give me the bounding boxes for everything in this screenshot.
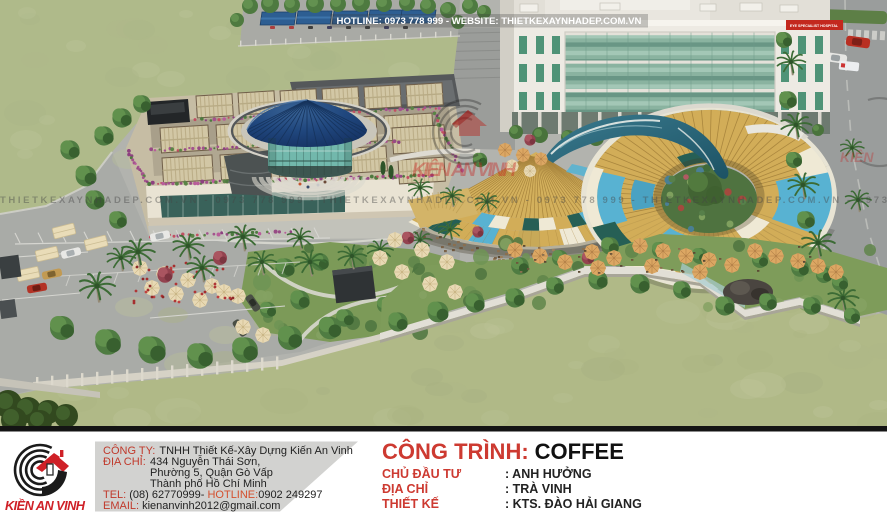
svg-text:KIỀN AN VINH: KIỀN AN VINH [5,498,86,513]
svg-text:EYE SPECIALIST HOSPITAL: EYE SPECIALIST HOSPITAL [790,24,839,28]
svg-text:: TRÀ VINH: : TRÀ VINH [505,481,572,496]
svg-text:CÔNG TRÌNH:COFFEE: CÔNG TRÌNH:COFFEE [382,439,624,464]
svg-text:ĐỊA CHỈ: ĐỊA CHỈ [382,481,429,496]
svg-text:THIẾT KẾ: THIẾT KẾ [382,496,439,511]
svg-text:KIÊN: KIÊN [840,148,874,165]
svg-text:: KTS. ĐÀO HẢI GIANG: : KTS. ĐÀO HẢI GIANG [505,496,642,511]
svg-text:: ANH HƯỞNG: : ANH HƯỞNG [505,466,592,481]
svg-text:KIÊN AN VINH: KIÊN AN VINH [412,159,517,181]
svg-text:EMAIL:kienanvinh2012@gmail.com: EMAIL:kienanvinh2012@gmail.com [103,500,280,512]
svg-text:HOTLINE: 0973 778 999 - WEBSIT: HOTLINE: 0973 778 999 - WEBSITE: THIETKE… [337,16,642,27]
svg-text:CHỦ ĐẦU TƯ: CHỦ ĐẦU TƯ [382,466,462,481]
